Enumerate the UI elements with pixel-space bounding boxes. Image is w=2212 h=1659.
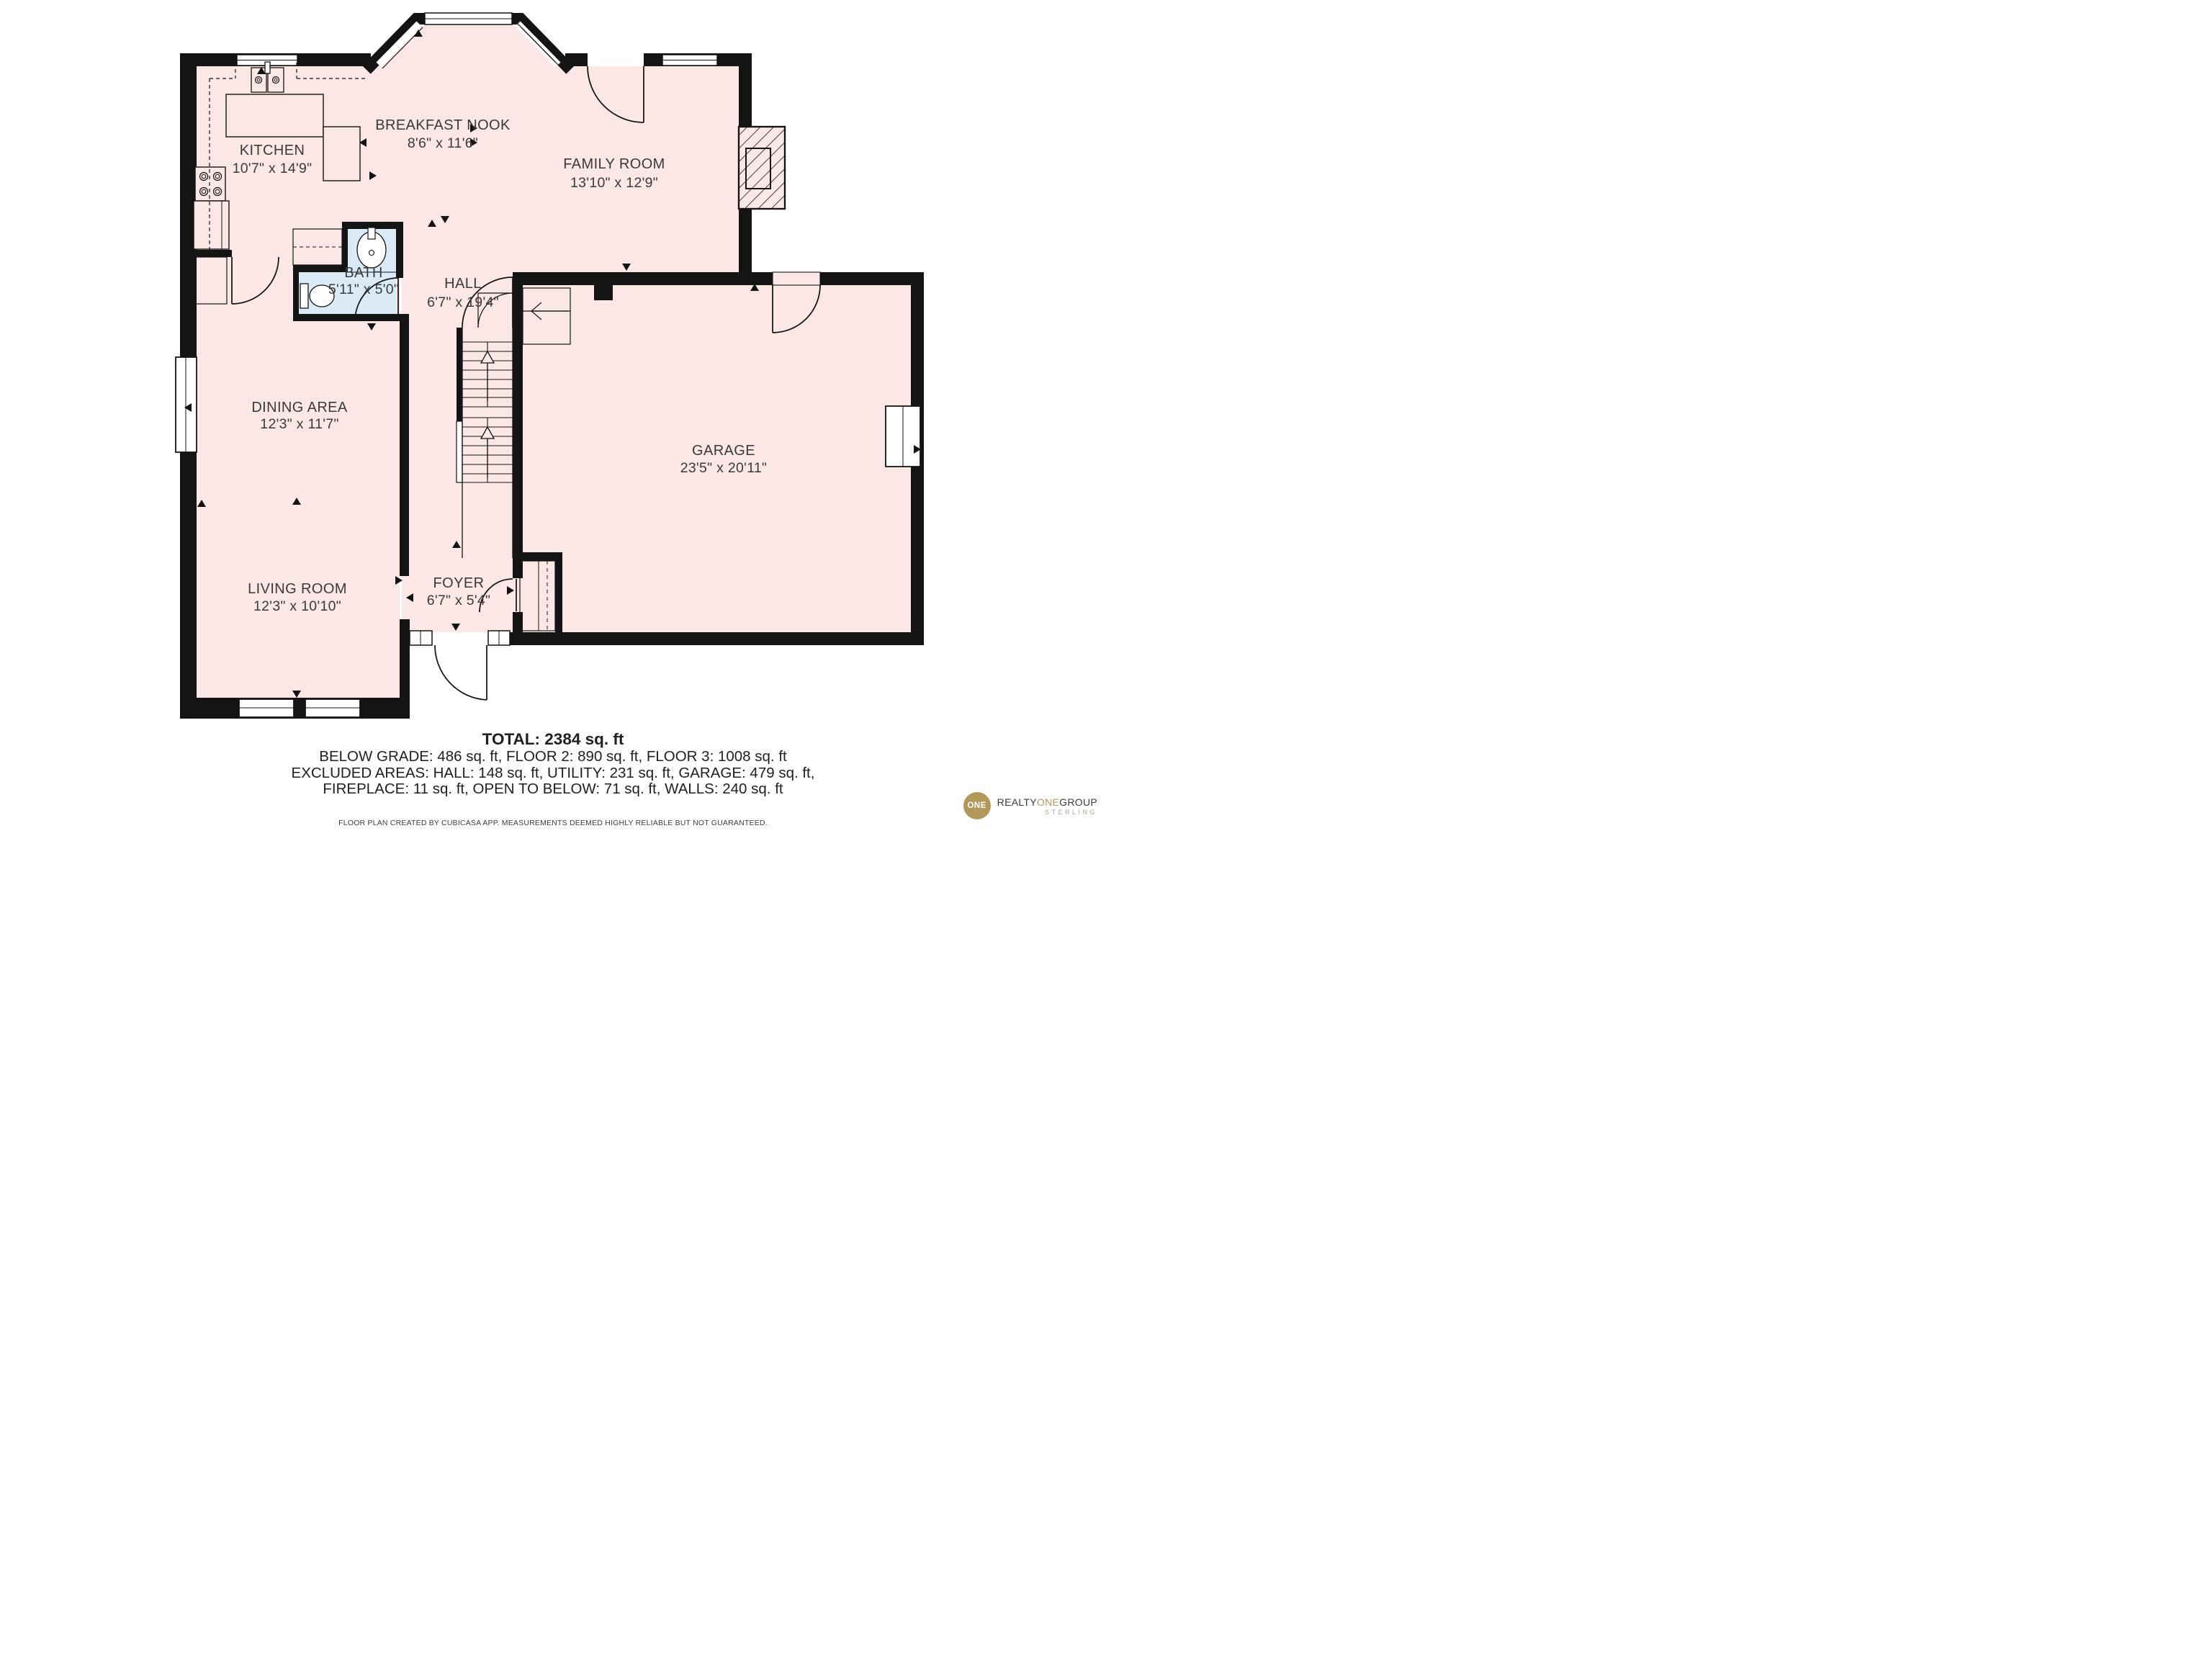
room-dims-kitchen: 10'7" x 14'9" <box>233 161 313 176</box>
one-badge-icon: ONE <box>963 792 991 819</box>
living-window-left <box>239 699 294 717</box>
garage-window <box>886 406 920 467</box>
floor-plan-page: KITCHEN 10'7" x 14'9" BREAKFAST NOOK 8'6… <box>0 0 1106 829</box>
foyer-sidelight-right <box>488 631 510 645</box>
refrigerator <box>194 201 229 249</box>
dining-window <box>176 357 197 452</box>
total-area: TOTAL: 2384 sq. ft <box>0 730 1106 749</box>
summary-line-2: EXCLUDED AREAS: HALL: 148 sq. ft, UTILIT… <box>0 765 1106 782</box>
room-label-garage: GARAGE <box>692 443 755 459</box>
room-dims-hall: 6'7" x 19'4" <box>427 295 499 310</box>
room-label-hall: HALL <box>444 276 482 292</box>
room-label-family-room: FAMILY ROOM <box>563 156 665 172</box>
open-to-below-strip <box>457 421 462 482</box>
foyer-sidelight-left <box>410 631 432 645</box>
brand-realty: REALTY <box>997 796 1037 808</box>
room-label-breakfast-nook: BREAKFAST NOOK <box>375 117 511 133</box>
room-dims-breakfast-nook: 8'6" x 11'6" <box>408 135 478 151</box>
summary-line-3: FIREPLACE: 11 sq. ft, OPEN TO BELOW: 71 … <box>0 781 1106 798</box>
floor-plan-drawing: KITCHEN 10'7" x 14'9" BREAKFAST NOOK 8'6… <box>0 0 1106 727</box>
room-label-kitchen: KITCHEN <box>240 143 305 158</box>
living-window-right <box>305 699 360 717</box>
room-dims-living-room: 12'3" x 10'10" <box>253 598 341 614</box>
stove <box>195 167 225 201</box>
stair-landing <box>523 288 570 344</box>
room-dims-foyer: 6'7" x 5'4" <box>427 593 491 608</box>
fireplace <box>739 127 785 209</box>
brand-subtitle: STERLING <box>1045 809 1097 816</box>
disclaimer: FLOOR PLAN CREATED BY CUBICASA APP. MEAS… <box>0 819 1106 827</box>
room-dims-garage: 23'5" x 20'11" <box>680 460 768 476</box>
brand-one: ONE <box>1037 796 1059 808</box>
brand-name: REALTYONEGROUP <box>997 796 1097 808</box>
room-label-foyer: FOYER <box>433 575 485 591</box>
room-dims-dining-area: 12'3" x 11'7" <box>260 416 338 432</box>
room-label-living-room: LIVING ROOM <box>248 581 347 597</box>
area-summary: TOTAL: 2384 sq. ft BELOW GRADE: 486 sq. … <box>0 730 1106 798</box>
realty-one-group-logo: ONE REALTYONEGROUP STERLING <box>963 792 1097 819</box>
front-door <box>435 645 487 700</box>
room-label-bath: BATH <box>344 265 382 281</box>
summary-line-1: BELOW GRADE: 486 sq. ft, FLOOR 2: 890 sq… <box>0 749 1106 765</box>
room-dims-family-room: 13'10" x 12'9" <box>570 175 658 191</box>
brand-group: GROUP <box>1059 796 1097 808</box>
room-label-dining-area: DINING AREA <box>251 400 348 415</box>
island <box>323 127 360 181</box>
room-dims-bath: 5'11" x 5'0" <box>328 282 399 297</box>
family-room-window <box>662 55 717 66</box>
